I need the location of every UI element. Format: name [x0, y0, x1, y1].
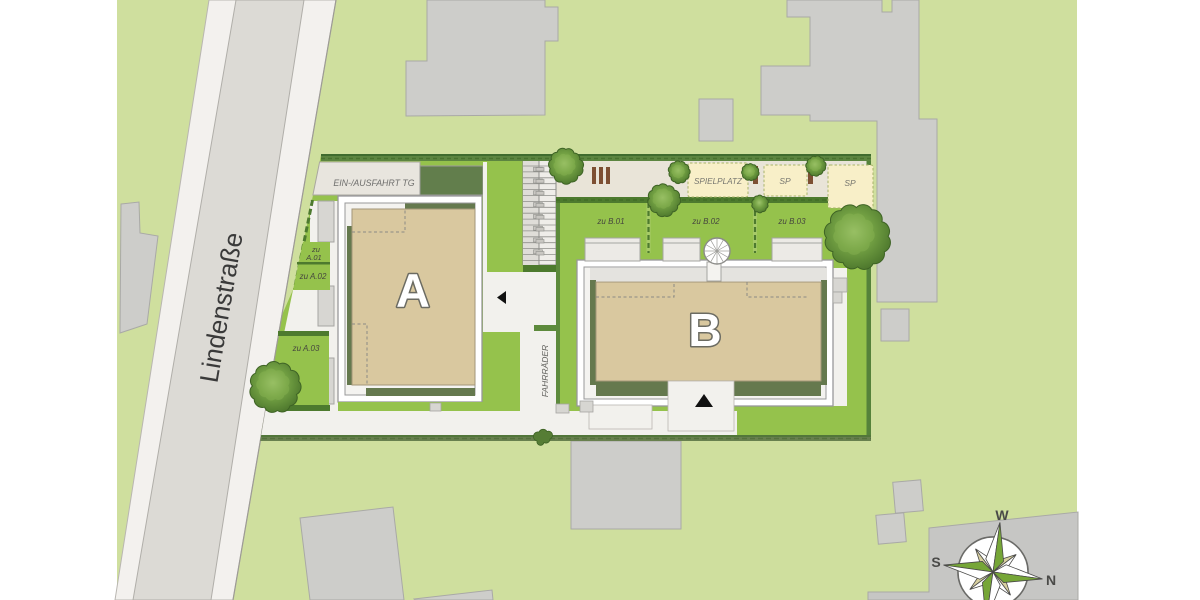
svg-text:SP: SP — [844, 178, 856, 188]
svg-text:FAHRRÄDER: FAHRRÄDER — [540, 345, 550, 397]
svg-text:EIN-/AUSFAHRT TG: EIN-/AUSFAHRT TG — [333, 178, 414, 188]
svg-text:zu B.03: zu B.03 — [777, 217, 806, 226]
svg-text:zu B.01: zu B.01 — [596, 217, 624, 226]
svg-text:N: N — [1046, 572, 1056, 588]
svg-text:B: B — [688, 304, 721, 356]
svg-text:SPIELPLATZ: SPIELPLATZ — [694, 177, 743, 186]
svg-text:zu A.02: zu A.02 — [299, 272, 327, 281]
svg-text:W: W — [995, 507, 1009, 523]
svg-text:S: S — [931, 554, 940, 570]
svg-text:A.01: A.01 — [305, 253, 321, 262]
svg-text:SP: SP — [779, 176, 791, 186]
svg-text:A: A — [396, 264, 430, 317]
svg-text:zu B.02: zu B.02 — [691, 217, 720, 226]
svg-text:zu A.03: zu A.03 — [292, 344, 320, 353]
